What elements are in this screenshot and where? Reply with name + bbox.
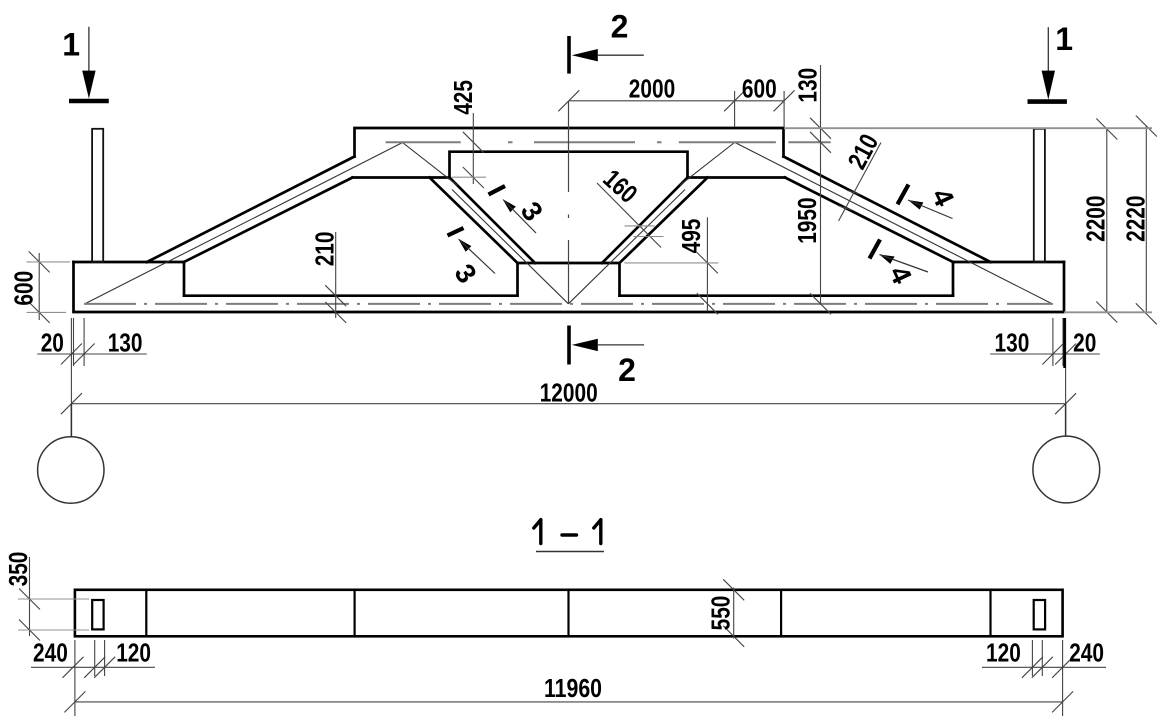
svg-text:20: 20 (41, 327, 64, 357)
svg-text:120: 120 (986, 638, 1021, 668)
svg-text:550: 550 (705, 596, 735, 631)
svg-text:600: 600 (9, 271, 39, 306)
svg-text:425: 425 (448, 80, 478, 115)
svg-text:130: 130 (995, 327, 1030, 357)
svg-text:11960: 11960 (544, 673, 602, 703)
svg-text:2: 2 (611, 9, 629, 45)
svg-text:1950: 1950 (792, 197, 822, 243)
svg-text:240: 240 (33, 638, 68, 668)
svg-text:12000: 12000 (540, 378, 598, 408)
svg-text:20: 20 (1073, 327, 1096, 357)
svg-text:2220: 2220 (1121, 196, 1151, 242)
svg-text:350: 350 (3, 552, 33, 587)
svg-text:1: 1 (1055, 21, 1073, 57)
svg-text:2200: 2200 (1081, 196, 1111, 242)
svg-text:1: 1 (62, 27, 80, 63)
svg-text:240: 240 (1069, 638, 1104, 668)
svg-text:210: 210 (310, 232, 340, 267)
svg-text:600: 600 (742, 73, 777, 103)
svg-text:130: 130 (108, 327, 143, 357)
svg-text:2000: 2000 (629, 73, 675, 103)
svg-text:120: 120 (116, 638, 151, 668)
svg-text:2: 2 (618, 352, 636, 388)
svg-text:495: 495 (676, 219, 706, 254)
svg-text:130: 130 (792, 68, 822, 103)
